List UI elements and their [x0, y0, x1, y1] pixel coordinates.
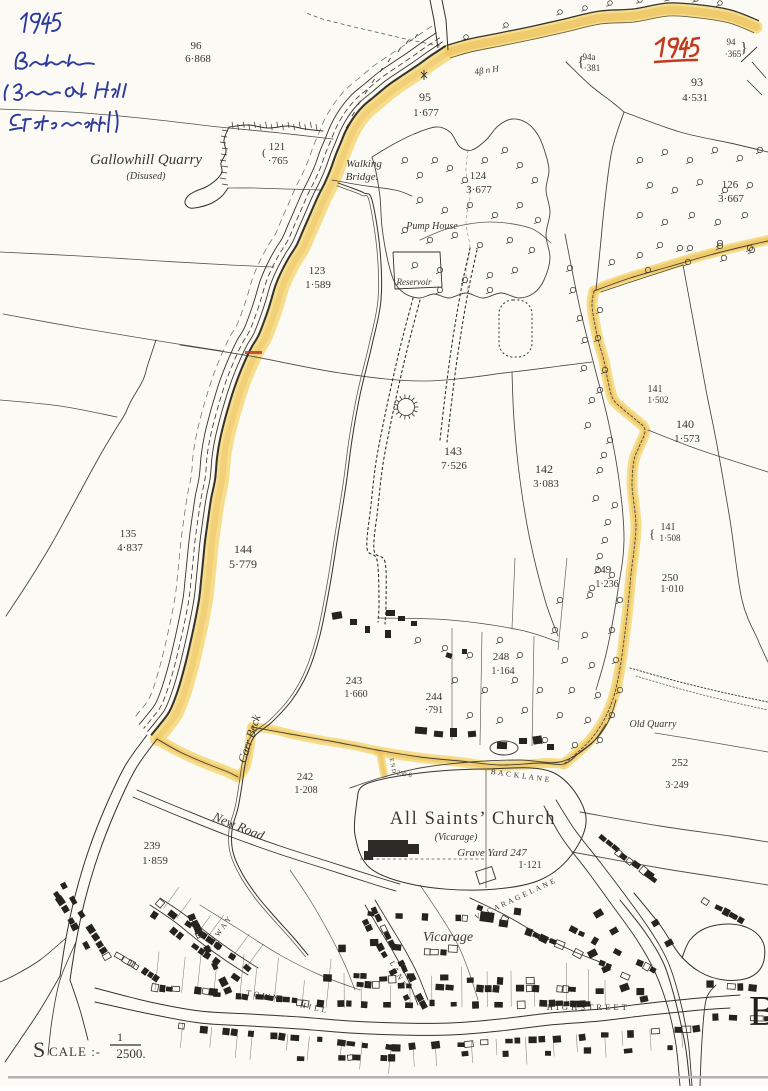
svg-text:121: 121	[269, 141, 286, 153]
svg-text:Reservoir: Reservoir	[396, 277, 432, 287]
svg-text:1·502: 1·502	[648, 395, 669, 405]
svg-text:141: 141	[661, 522, 676, 533]
svg-text:·381: ·381	[584, 63, 601, 73]
svg-text:243: 243	[346, 675, 363, 687]
svg-text:Bridge.: Bridge.	[346, 171, 379, 183]
svg-text:244: 244	[426, 691, 443, 703]
svg-text:239: 239	[144, 840, 161, 852]
svg-text:1·859: 1·859	[142, 855, 168, 867]
svg-text:96: 96	[191, 40, 203, 52]
svg-text:1·164: 1·164	[491, 666, 514, 677]
svg-text:}: }	[740, 40, 747, 56]
svg-text:S: S	[33, 1037, 45, 1062]
svg-text:1·121: 1·121	[518, 860, 541, 871]
svg-text:252: 252	[672, 757, 689, 769]
svg-text:93: 93	[691, 75, 703, 89]
svg-text:1: 1	[117, 1030, 123, 1044]
svg-text:126: 126	[722, 179, 739, 191]
svg-text:3·249: 3·249	[665, 780, 688, 791]
svg-text:124: 124	[470, 170, 487, 182]
svg-text:250: 250	[662, 572, 679, 584]
svg-text:3·677: 3·677	[466, 184, 492, 196]
svg-text:141: 141	[648, 384, 663, 395]
svg-text:144: 144	[234, 542, 252, 556]
svg-text:94: 94	[727, 37, 737, 47]
svg-text:2500.: 2500.	[116, 1046, 145, 1061]
svg-text:{: {	[577, 54, 584, 70]
svg-text:CALE :-: CALE :-	[49, 1044, 101, 1059]
svg-text:1·010: 1·010	[660, 584, 683, 595]
svg-text:142: 142	[535, 462, 553, 476]
svg-text:1·573: 1·573	[674, 433, 700, 445]
svg-text:3·083: 3·083	[533, 478, 559, 490]
svg-text:1·660: 1·660	[344, 689, 367, 700]
svg-text:(Vicarage): (Vicarage)	[435, 832, 478, 843]
svg-text:95: 95	[419, 90, 431, 104]
svg-text:(: (	[262, 147, 266, 159]
svg-text:7·526: 7·526	[441, 460, 467, 472]
svg-text:(Disused): (Disused)	[127, 171, 167, 182]
svg-text:4·531: 4·531	[682, 92, 708, 104]
svg-text:Old Quarry: Old Quarry	[630, 719, 678, 730]
svg-text:·765: ·765	[268, 155, 289, 167]
svg-text:5·779: 5·779	[229, 557, 257, 571]
svg-text:1·677: 1·677	[413, 107, 439, 119]
svg-text:135: 135	[120, 528, 137, 540]
svg-text:Pump House: Pump House	[405, 221, 458, 232]
svg-text:All Saints’ Church: All Saints’ Church	[390, 809, 556, 829]
svg-text:140: 140	[676, 417, 694, 431]
svg-text:1·236: 1·236	[595, 579, 618, 590]
svg-text:1·208: 1·208	[294, 785, 317, 796]
svg-text:·365: ·365	[725, 49, 742, 59]
svg-text:1·508: 1·508	[660, 533, 681, 543]
svg-text:1·589: 1·589	[305, 279, 331, 291]
svg-text:242: 242	[297, 771, 314, 783]
svg-text:Gallowhill Quarry: Gallowhill Quarry	[90, 152, 202, 168]
svg-text:123: 123	[309, 265, 326, 277]
svg-text:6·868: 6·868	[185, 53, 211, 65]
svg-text:143: 143	[444, 444, 462, 458]
svg-text:{: {	[649, 526, 655, 541]
svg-text:B: B	[749, 989, 768, 1035]
svg-text:4·837: 4·837	[117, 542, 143, 554]
svg-text:Walking: Walking	[346, 158, 382, 170]
svg-text:·791: ·791	[425, 705, 443, 716]
svg-text:Grave Yard 247: Grave Yard 247	[457, 847, 527, 859]
svg-text:3·667: 3·667	[718, 193, 744, 205]
svg-text:248: 248	[493, 651, 510, 663]
svg-text:Vicarage: Vicarage	[423, 930, 473, 945]
